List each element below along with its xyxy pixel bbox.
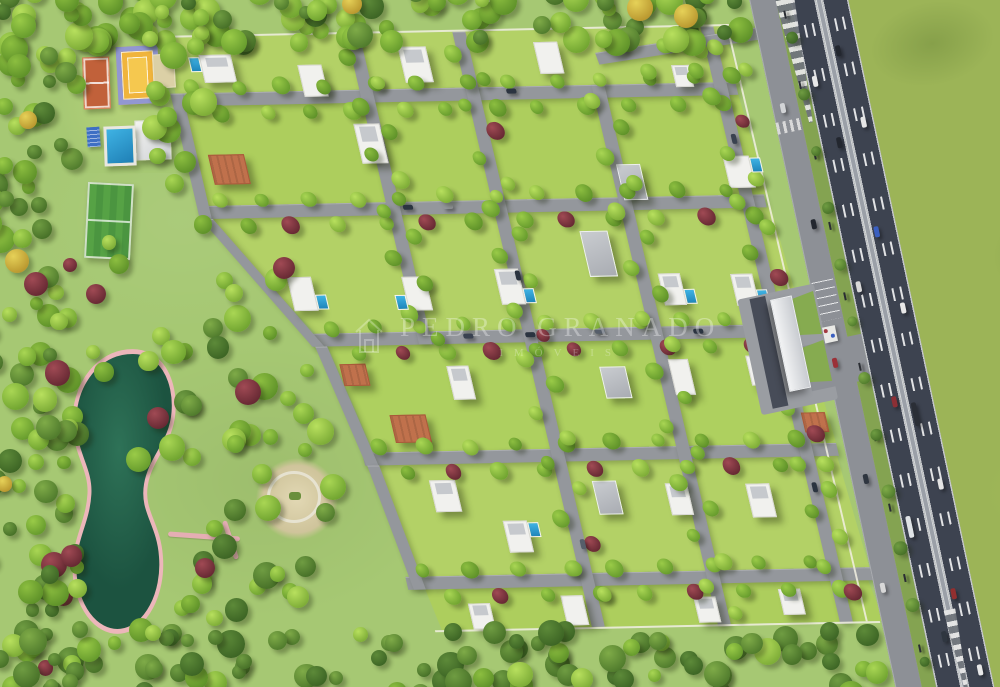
tree-icon — [387, 682, 407, 687]
tree-icon — [457, 646, 477, 666]
tree-icon — [300, 364, 313, 377]
tree-icon — [42, 580, 69, 607]
tree-icon — [623, 639, 640, 656]
tree-icon — [866, 661, 889, 684]
tree-icon — [509, 634, 524, 649]
tree-icon — [194, 215, 213, 234]
tree-icon — [274, 0, 288, 10]
red-tree-icon — [24, 272, 48, 296]
tree-icon — [27, 145, 41, 159]
tennis-court — [82, 57, 111, 110]
tree-icon — [77, 637, 102, 662]
tree-icon — [306, 666, 326, 686]
tree-icon — [180, 652, 204, 676]
red-tree-icon — [235, 379, 261, 405]
tree-icon — [0, 449, 22, 474]
tree-icon — [2, 383, 29, 410]
parked-car — [594, 329, 605, 334]
masterplan-aerial-render: PEDRO GRANADO IMÓVEIS — [0, 0, 1000, 687]
tree-icon — [19, 628, 47, 656]
tree-icon — [65, 22, 92, 49]
tree-icon — [473, 668, 494, 687]
tree-icon — [155, 5, 168, 18]
tree-icon — [224, 499, 245, 520]
tree-icon — [160, 42, 187, 69]
tree-icon — [32, 219, 52, 239]
parked-car — [693, 329, 704, 334]
roof-detail — [451, 369, 468, 381]
tree-icon — [24, 0, 45, 3]
tree-icon — [717, 25, 732, 40]
swimming-pool — [103, 125, 136, 166]
tree-icon — [411, 684, 431, 687]
tree-icon — [649, 632, 667, 650]
tree-icon — [207, 336, 229, 358]
tree-icon — [193, 9, 209, 25]
tree-icon — [0, 157, 13, 174]
tree-icon — [483, 621, 506, 644]
tree-icon — [34, 480, 57, 503]
tree-icon — [252, 464, 271, 483]
tree-icon — [102, 235, 116, 249]
tree-icon — [255, 495, 281, 521]
tree-icon — [359, 0, 383, 19]
yellow-tree-icon — [342, 0, 362, 14]
tree-icon — [371, 650, 387, 666]
tree-icon — [822, 653, 840, 671]
tree-icon — [181, 634, 194, 647]
tree-icon — [225, 284, 243, 302]
parked-car — [506, 88, 517, 93]
tree-icon — [86, 345, 99, 358]
lot-swimming-pool — [749, 157, 763, 172]
tree-icon — [142, 31, 158, 47]
tree-icon — [55, 62, 77, 84]
tree-icon — [138, 351, 158, 371]
tree-icon — [538, 620, 564, 646]
tree-icon — [227, 435, 245, 453]
roof-detail — [434, 483, 453, 495]
tree-icon — [109, 254, 129, 274]
tree-icon — [225, 598, 249, 622]
tree-icon — [290, 33, 309, 52]
terracotta-house — [208, 154, 251, 185]
tree-icon — [146, 81, 165, 100]
yellow-tree-icon — [674, 4, 698, 28]
tree-icon — [181, 395, 202, 416]
tree-icon — [26, 515, 46, 535]
parked-car — [463, 333, 474, 338]
red-tree-icon — [61, 545, 83, 567]
tree-icon — [270, 566, 285, 581]
tree-icon — [57, 456, 70, 469]
roof-detail — [698, 599, 714, 608]
parked-car — [442, 204, 453, 209]
tree-icon — [727, 0, 741, 9]
yellow-tree-icon — [0, 476, 12, 491]
tree-icon — [126, 447, 151, 472]
tree-icon — [320, 474, 346, 500]
terracotta-house — [339, 364, 370, 386]
tree-icon — [663, 26, 689, 52]
tree-icon — [98, 0, 124, 15]
tree-icon — [183, 448, 201, 466]
tree-icon — [3, 522, 17, 536]
tree-icon — [41, 565, 59, 583]
tree-icon — [247, 0, 272, 5]
red-tree-icon — [86, 284, 106, 304]
tree-icon — [13, 160, 37, 184]
tree-icon — [157, 107, 177, 127]
flower-bed-red — [823, 329, 828, 334]
tree-icon — [212, 534, 237, 559]
tree-icon — [145, 660, 163, 678]
tree-icon — [190, 88, 217, 115]
tree-icon — [62, 674, 78, 687]
tree-icon — [187, 38, 203, 54]
tree-icon — [13, 229, 32, 248]
tree-icon — [2, 307, 17, 322]
soccer-midline — [88, 219, 130, 223]
roof-detail — [359, 127, 379, 142]
tree-icon — [13, 661, 40, 687]
tree-icon — [417, 663, 430, 676]
tree-icon — [684, 656, 703, 675]
tree-icon — [236, 654, 251, 669]
tree-icon — [445, 0, 470, 5]
tree-icon — [445, 668, 472, 687]
roof-detail — [403, 49, 424, 62]
tree-icon — [7, 54, 31, 78]
tree-icon — [145, 625, 161, 641]
tree-icon — [68, 579, 87, 598]
red-tree-icon — [147, 407, 169, 429]
tree-icon — [0, 353, 3, 371]
roof-detail — [205, 57, 228, 67]
tree-icon — [856, 624, 879, 647]
tree-icon — [385, 634, 403, 652]
tree-icon — [213, 10, 232, 29]
tree-icon — [33, 387, 57, 411]
tree-icon — [380, 30, 403, 53]
tree-icon — [108, 636, 121, 649]
red-tree-icon — [195, 558, 215, 578]
playground-blue — [86, 127, 100, 148]
tree-icon — [135, 682, 154, 687]
tree-icon — [533, 16, 551, 34]
tree-icon — [741, 633, 763, 655]
tree-icon — [28, 454, 44, 470]
tree-icon — [18, 347, 36, 365]
tree-icon — [26, 603, 40, 617]
yellow-tree-icon — [5, 249, 30, 274]
tree-icon — [43, 75, 56, 88]
tree-icon — [206, 610, 222, 626]
red-tree-icon — [273, 257, 295, 279]
tree-icon — [165, 174, 184, 193]
tree-icon — [11, 13, 36, 38]
tree-icon — [45, 679, 58, 687]
tree-icon — [782, 644, 802, 664]
tree-icon — [329, 671, 343, 685]
tree-icon — [280, 391, 295, 406]
tree-icon — [224, 305, 251, 332]
tree-icon — [208, 630, 223, 645]
parked-car — [402, 205, 413, 210]
tree-icon — [94, 362, 113, 381]
tree-icon — [295, 556, 317, 578]
tree-icon — [72, 621, 88, 637]
tree-icon — [648, 669, 661, 682]
tree-icon — [50, 313, 67, 330]
parked-car — [525, 332, 536, 337]
tree-icon — [307, 418, 334, 445]
tree-icon — [347, 22, 373, 48]
tree-icon — [563, 0, 589, 12]
roof-detail — [750, 486, 768, 498]
roof-detail — [472, 606, 488, 615]
tree-icon — [268, 631, 287, 650]
tree-icon — [40, 47, 58, 65]
tree-icon — [571, 668, 593, 687]
tree-icon — [161, 340, 186, 365]
tree-icon — [613, 669, 634, 687]
tree-icon — [203, 318, 223, 338]
red-tree-icon — [63, 258, 77, 272]
tree-icon — [799, 642, 817, 660]
red-tree-icon — [45, 360, 71, 386]
roof-detail — [508, 523, 526, 535]
tree-icon — [181, 595, 200, 614]
yellow-tree-icon — [19, 111, 37, 129]
tree-icon — [507, 662, 532, 687]
flower-bed-blue — [831, 333, 836, 338]
tree-icon — [31, 197, 47, 213]
house — [199, 54, 238, 83]
roof-detail — [735, 276, 752, 288]
tree-icon — [0, 4, 11, 20]
roof-detail — [662, 276, 679, 288]
tree-icon — [12, 479, 26, 493]
tree-icon — [316, 503, 335, 522]
tree-icon — [18, 580, 43, 605]
tree-icon — [0, 98, 13, 115]
